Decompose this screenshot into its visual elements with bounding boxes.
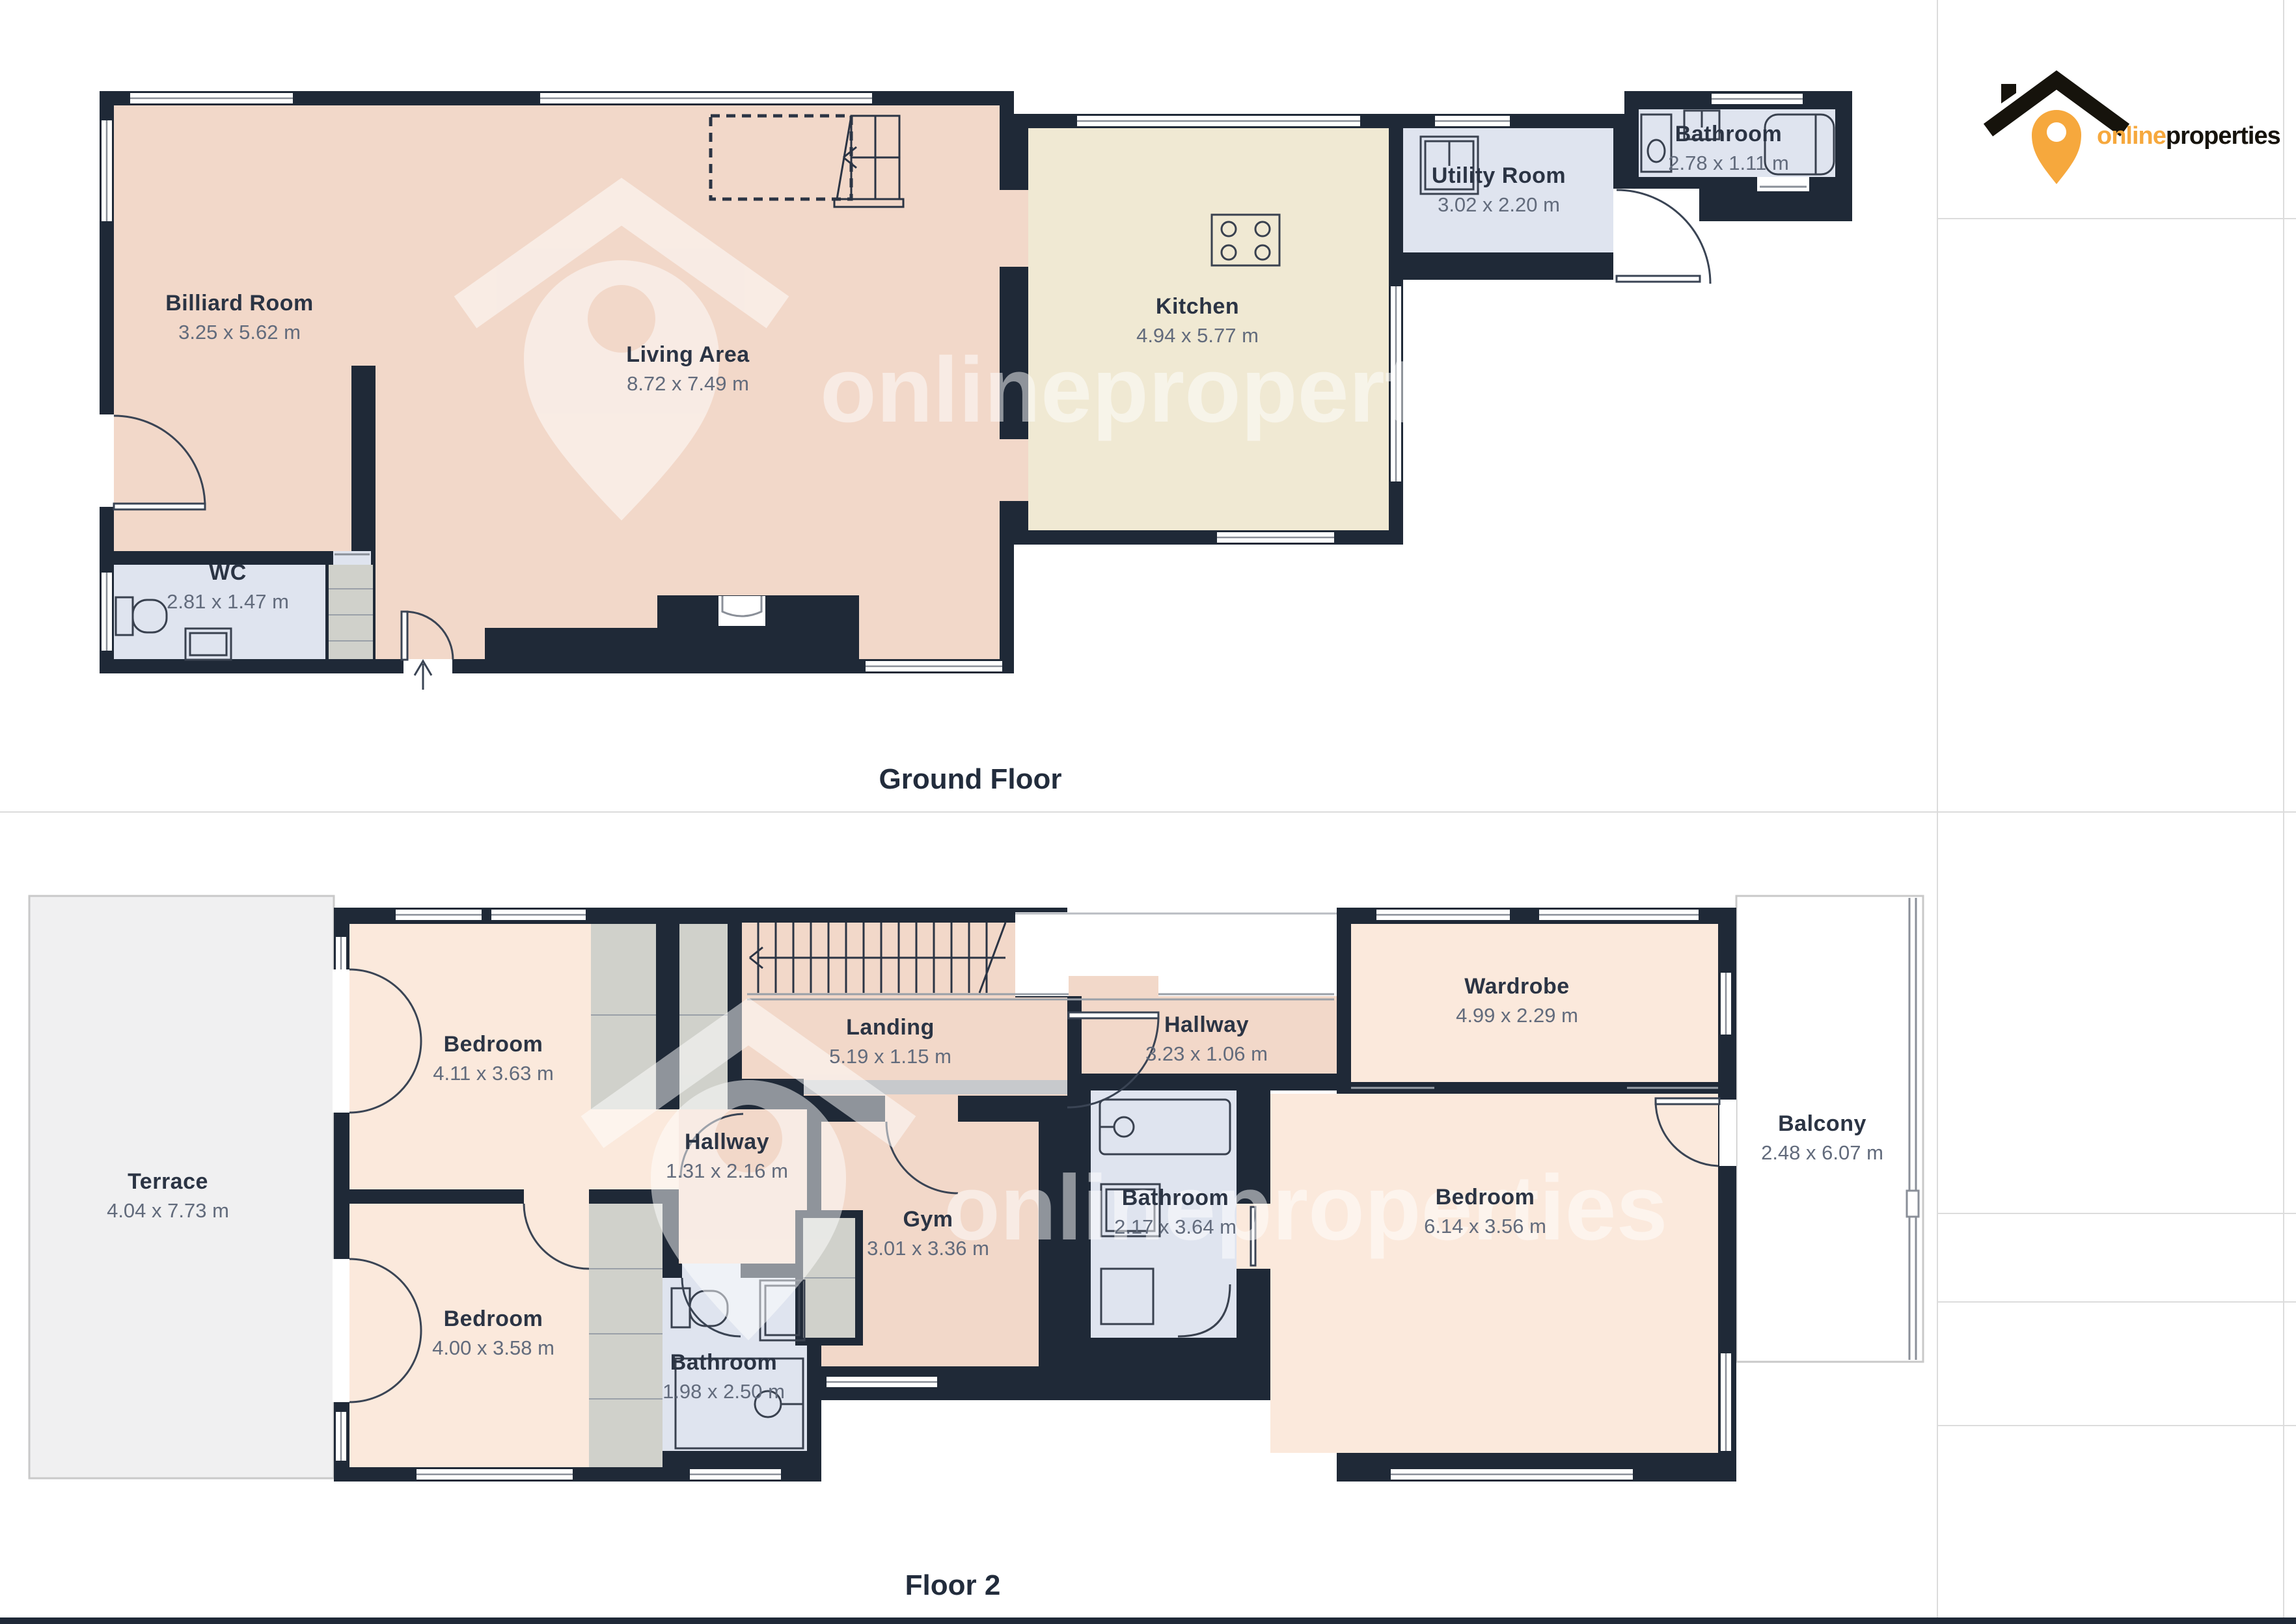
label-balcony: Balcony 2.48 x 6.07 m [1761,1111,1883,1165]
label-bedroom-top-left: Bedroom 4.11 x 3.63 m [433,1032,554,1085]
right-edge-line [2283,0,2284,1624]
label-wardrobe: Wardrobe 4.99 x 2.29 m [1456,974,1578,1027]
floor2-notch-outside [821,1400,1067,1482]
floorplan-page: { "branding": { "watermark_text": "onlin… [0,0,2296,1624]
label-bedroom-right: Bedroom 6.14 x 3.56 m [1424,1185,1546,1238]
logo-text-online: online [2097,122,2166,150]
label-bathroom-bottom: Bathroom 1.98 x 2.50 m [663,1350,785,1403]
sidebar-box-line-2 [1937,1301,2296,1303]
ground-floor-title: Ground Floor [879,763,1061,796]
label-landing: Landing 5.19 x 1.15 m [829,1015,951,1068]
ground-floor-plan: onlineproperties [100,91,1852,690]
bottom-bar [0,1617,2296,1624]
label-hallway-upper: Hallway 3.23 x 1.06 m [1145,1012,1268,1066]
label-wc: WC 2.81 x 1.47 m [167,560,289,614]
label-gym: Gym 3.01 x 3.36 m [867,1207,989,1260]
watermark-text-floor2: onlineproperties [944,1156,1668,1260]
room-bedroom-right [1270,1094,1718,1453]
onlineproperties-logo: onlineproperties [1952,62,2291,198]
stairwell-void [1015,912,1337,996]
logo-text: onlineproperties [2097,122,2280,150]
label-kitchen: Kitchen 4.94 x 5.77 m [1136,294,1259,347]
logo-text-properties: properties [2166,122,2280,150]
wc-closet [329,565,373,659]
room-billiard-opening [351,105,376,366]
floor-2-plan: onlineproperties [29,896,1923,1482]
label-bathroom-mid: Bathroom 2.17 x 3.64 m [1114,1185,1237,1239]
bedroom-bl-closet [589,1204,663,1467]
watermark-text-ground: onlineproperties [820,338,1544,442]
floor-2-title: Floor 2 [905,1569,1001,1602]
label-bedroom-bottom-left: Bedroom 4.00 x 3.58 m [432,1306,554,1360]
label-terrace: Terrace 4.04 x 7.73 m [107,1169,229,1223]
label-utility-room: Utility Room 3.02 x 2.20 m [1432,163,1566,217]
living-kitchen-opening-1 [1000,190,1028,267]
sidebar-divider-line [1937,0,1938,1624]
label-bathroom-gf: Bathroom 2.78 x 1.11 m [1668,122,1789,175]
label-hallway-inner: Hallway 1.31 x 2.16 m [666,1130,788,1183]
sidebar-box-line-1 [1937,1213,2296,1214]
sidebar-box-line-3 [1937,1425,2296,1426]
label-billiard-room: Billiard Room 3.25 x 5.62 m [165,291,314,344]
label-living-area: Living Area 8.72 x 7.49 m [626,342,749,396]
floor-divider-line [0,811,2296,813]
living-kitchen-opening-2 [1000,439,1028,501]
logo-box-line [1937,218,2296,219]
